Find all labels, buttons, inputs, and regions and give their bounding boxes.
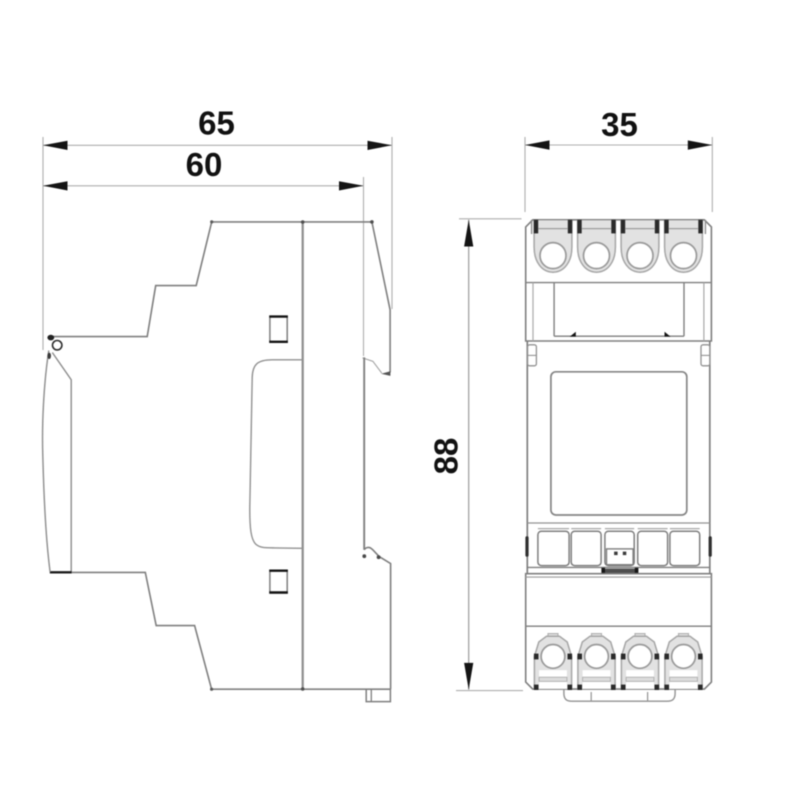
svg-text:65: 65	[198, 105, 235, 142]
svg-text:88: 88	[428, 438, 465, 475]
svg-text:60: 60	[186, 146, 223, 183]
svg-text:35: 35	[601, 106, 638, 143]
